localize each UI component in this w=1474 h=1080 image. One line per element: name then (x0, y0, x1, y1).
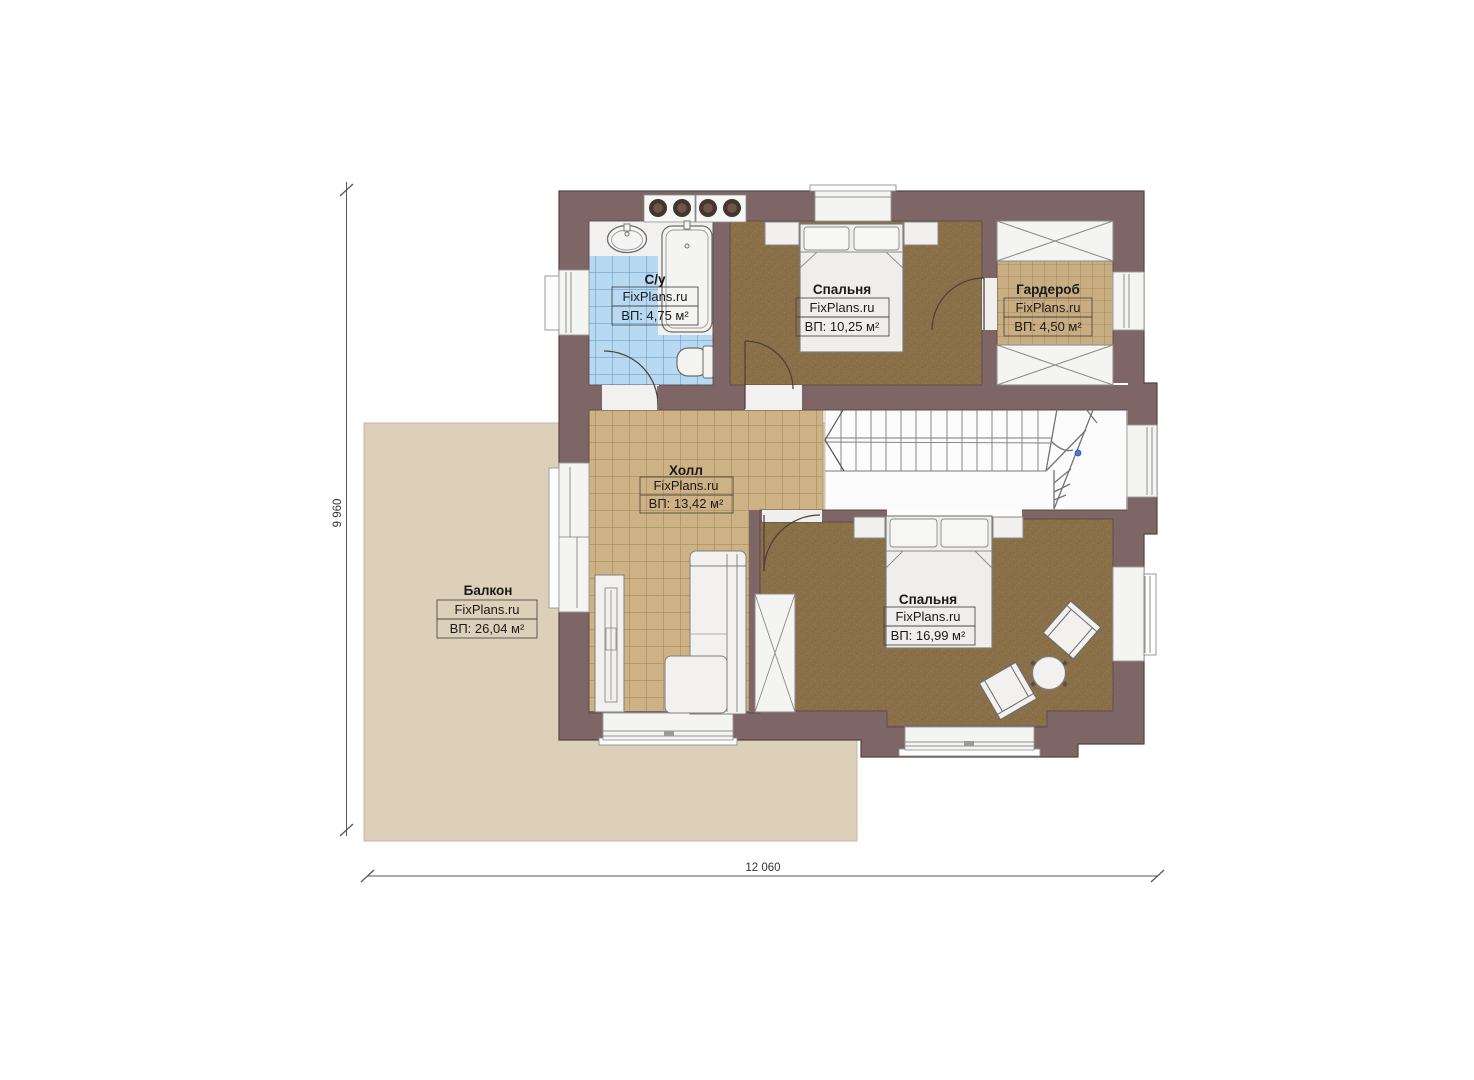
svg-text:С/у: С/у (644, 272, 666, 287)
svg-text:ВП: 16,99 м²: ВП: 16,99 м² (891, 628, 966, 643)
svg-text:FixPlans.ru: FixPlans.ru (809, 300, 874, 315)
svg-text:ВП: 13,42 м²: ВП: 13,42 м² (649, 496, 724, 511)
svg-text:FixPlans.ru: FixPlans.ru (622, 289, 687, 304)
svg-text:FixPlans.ru: FixPlans.ru (454, 602, 519, 617)
svg-text:9 960: 9 960 (332, 499, 344, 528)
svg-text:FixPlans.ru: FixPlans.ru (1015, 300, 1080, 315)
svg-text:ВП: 4,75 м²: ВП: 4,75 м² (621, 308, 689, 323)
svg-text:12 060: 12 060 (745, 862, 780, 874)
svg-text:FixPlans.ru: FixPlans.ru (895, 609, 960, 624)
svg-text:Гардероб: Гардероб (1016, 282, 1080, 297)
svg-text:Балкон: Балкон (464, 583, 513, 598)
svg-text:ВП: 4,50 м²: ВП: 4,50 м² (1014, 319, 1082, 334)
svg-text:Спальня: Спальня (899, 592, 957, 607)
svg-text:ВП: 26,04 м²: ВП: 26,04 м² (450, 621, 525, 636)
svg-text:Спальня: Спальня (813, 282, 871, 297)
svg-text:Холл: Холл (669, 463, 703, 478)
svg-text:FixPlans.ru: FixPlans.ru (653, 478, 718, 493)
svg-text:ВП: 10,25 м²: ВП: 10,25 м² (805, 319, 880, 334)
